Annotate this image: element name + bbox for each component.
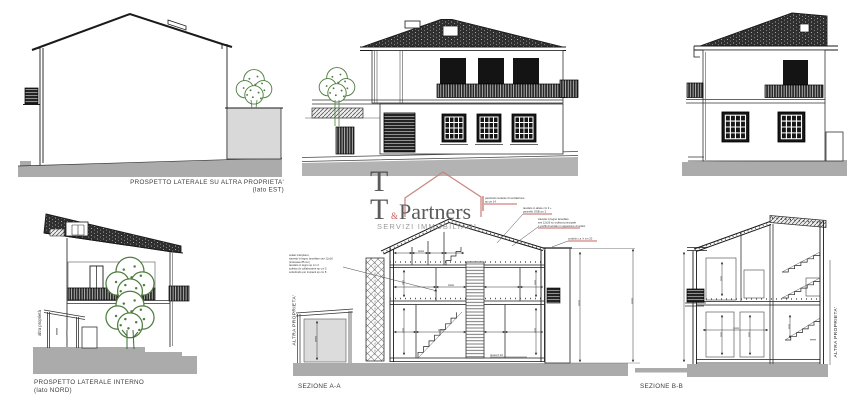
hatched-window (547, 288, 560, 303)
svg-text:tavolato in legno sp cm 3: tavolato in legno sp cm 3 (289, 263, 319, 267)
annotation-left-block: solaio interpiano: travetto in legno lam… (289, 253, 437, 291)
panel-title: PROSPETTO LATERALE INTERNO (34, 379, 144, 386)
tree (236, 70, 272, 108)
annotation-vent: pacchetto isolante di ventilazione (485, 196, 525, 200)
gate (336, 127, 354, 154)
ground (302, 157, 578, 176)
side-balcony-railing (560, 80, 578, 98)
annotation-travetto: travetto in legno lamellare (538, 217, 569, 221)
drawing-sheet: PROSPETTO LATERALE SU ALTRA PROPRIETA' (… (0, 0, 858, 400)
neighbor-garage-door (304, 319, 346, 362)
grid-window (477, 114, 501, 142)
svg-text:soletta cls collaborante sp cm: soletta cls collaborante sp cm 5 (289, 267, 327, 271)
grid-window (722, 112, 749, 142)
panel-front-elevation (302, 20, 578, 177)
stair-landing (806, 278, 820, 296)
ground (687, 364, 828, 377)
logo-ampersand: & (391, 211, 398, 221)
ground-step (20, 161, 31, 166)
ground (682, 160, 847, 176)
annotation-cordolo: cordolo c.a. h cm 20 (568, 237, 593, 241)
upper-window (440, 58, 466, 88)
grid-window (512, 114, 536, 142)
neighbor-facade-wall (543, 248, 640, 363)
ground-left (635, 368, 687, 373)
left-wall (693, 251, 697, 364)
ground (33, 347, 197, 374)
neighbor-pergola (296, 309, 353, 363)
garage-door (384, 113, 415, 152)
dimension-lines (684, 252, 816, 362)
planter-hedge (312, 108, 363, 118)
svg-text:(interasse 85 cm): (interasse 85 cm) (289, 260, 310, 264)
skylight (443, 26, 458, 36)
upper-floor (312, 51, 578, 105)
window-section (687, 289, 704, 302)
side-shutter-window (23, 88, 40, 105)
grid-window (442, 114, 466, 142)
attic-walls (412, 232, 444, 265)
boundary-label: ALTRA PROPRIETA' (292, 295, 298, 346)
right-wall (820, 221, 824, 364)
french-door (90, 266, 103, 289)
interior-panel (744, 270, 764, 298)
grid-window (778, 112, 805, 142)
section-structure (381, 219, 545, 362)
skylight (800, 24, 809, 32)
tree (319, 68, 355, 103)
roof-line (32, 14, 232, 50)
pergola (44, 310, 97, 348)
stair-shaft (466, 262, 484, 358)
svg-text:travetto in legno lamellare se: travetto in legno lamellare sez 12x16 (289, 256, 333, 260)
interior-panel (706, 312, 734, 357)
panel-title: SEZIONE B-B (640, 383, 683, 390)
upper-window (478, 58, 504, 88)
pergola-door (82, 327, 97, 348)
dormer (66, 222, 88, 236)
right-balcony-railing (169, 286, 189, 301)
panel-east-elevation: PROSPETTO LATERALE SU ALTRA PROPRIETA' (… (18, 14, 284, 194)
svg-text:e profili di acciaio in appesi: e profili di acciaio in appesione di sol… (538, 224, 586, 228)
roof-slope (694, 222, 771, 252)
roof (44, 214, 183, 253)
upper-window (513, 58, 539, 88)
ground-walls (416, 305, 505, 359)
roof-vent-box (50, 229, 64, 236)
balcony-railing (765, 85, 823, 98)
boundary-label: ALTRA PROPRIETA' (833, 307, 839, 358)
right-wall (541, 250, 545, 362)
side-annex-wall (826, 132, 843, 161)
interior-panel (740, 312, 764, 357)
upper-door (783, 60, 808, 85)
logo-partners: Partners (399, 199, 471, 224)
panel-side-elevation (682, 13, 847, 176)
logo-subtitle: SERVIZI IMMOBILIARI (377, 222, 477, 231)
section-structure (684, 216, 830, 366)
left-balcony-railing (687, 83, 703, 98)
house-outline (32, 14, 232, 165)
ground (293, 363, 628, 376)
panel-north-elevation: altra proprietà PROSPETTO LATERALE INTER… (33, 214, 197, 394)
svg-text:sp cm 14: sp cm 14 (485, 200, 496, 204)
panel-subtitle: (lato NORD) (34, 387, 72, 394)
annotation-abete: tavolato in abete cm 3 + (523, 206, 552, 210)
stair-wall (770, 224, 773, 364)
balcony-railing (437, 84, 567, 98)
panel-title: PROSPETTO LATERALE SU ALTRA PROPRIETA' (130, 179, 284, 186)
gutter (694, 46, 700, 57)
panel-section-b: ALTRA PROPRIETA' SEZIONE B-B (635, 216, 839, 391)
annotation-quota: quota 0.10 (490, 353, 503, 357)
svg-text:pannello OSB cm 2: pannello OSB cm 2 (523, 210, 547, 214)
first-floor (696, 302, 820, 306)
boundary-label: altra proprietà (37, 309, 42, 336)
svg-text:solaio interpiano:: solaio interpiano: (289, 253, 310, 257)
ground-floor (380, 104, 563, 154)
hip-roof (360, 20, 566, 51)
ground (18, 158, 282, 177)
panel-subtitle: (lato EST) (253, 187, 284, 194)
boundary-wall (225, 108, 283, 159)
svg-text:sottofondo per impianti sp cm: sottofondo per impianti sp cm 8 (289, 270, 327, 274)
drawings-svg: PROSPETTO LATERALE SU ALTRA PROPRIETA' (… (0, 0, 858, 400)
panel-title: SEZIONE A-A (298, 383, 341, 390)
garden (305, 68, 380, 154)
chimney (405, 21, 420, 28)
staircase (782, 252, 820, 340)
svg-text:sez 12x26 su orditura principa: sez 12x26 su orditura principale (538, 221, 576, 225)
entry-step (688, 157, 704, 161)
ground-slab (696, 360, 820, 364)
ground-slab (390, 358, 545, 362)
